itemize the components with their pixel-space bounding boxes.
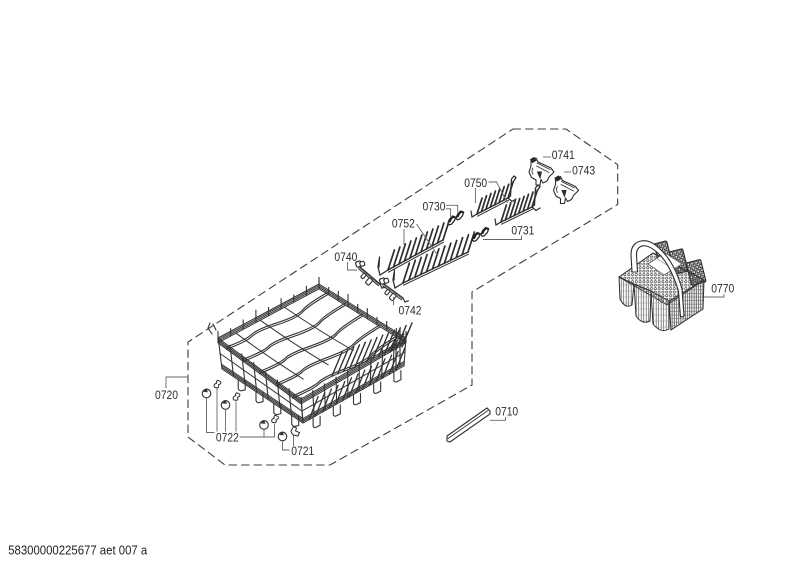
svg-text:0722: 0722	[216, 431, 239, 445]
svg-text:58300000225677 aet 007 a: 58300000225677 aet 007 a	[8, 542, 148, 557]
svg-text:0720: 0720	[155, 388, 178, 402]
svg-text:0770: 0770	[711, 282, 734, 296]
svg-text:0740: 0740	[334, 250, 357, 264]
svg-text:0743: 0743	[572, 163, 595, 177]
svg-text:0752: 0752	[392, 217, 415, 231]
svg-text:0731: 0731	[511, 223, 534, 237]
svg-text:0741: 0741	[552, 148, 575, 162]
svg-text:0721: 0721	[291, 444, 314, 458]
svg-text:0742: 0742	[399, 303, 422, 317]
svg-text:0710: 0710	[495, 405, 518, 419]
svg-text:0750: 0750	[464, 176, 487, 190]
svg-text:0730: 0730	[423, 199, 446, 213]
